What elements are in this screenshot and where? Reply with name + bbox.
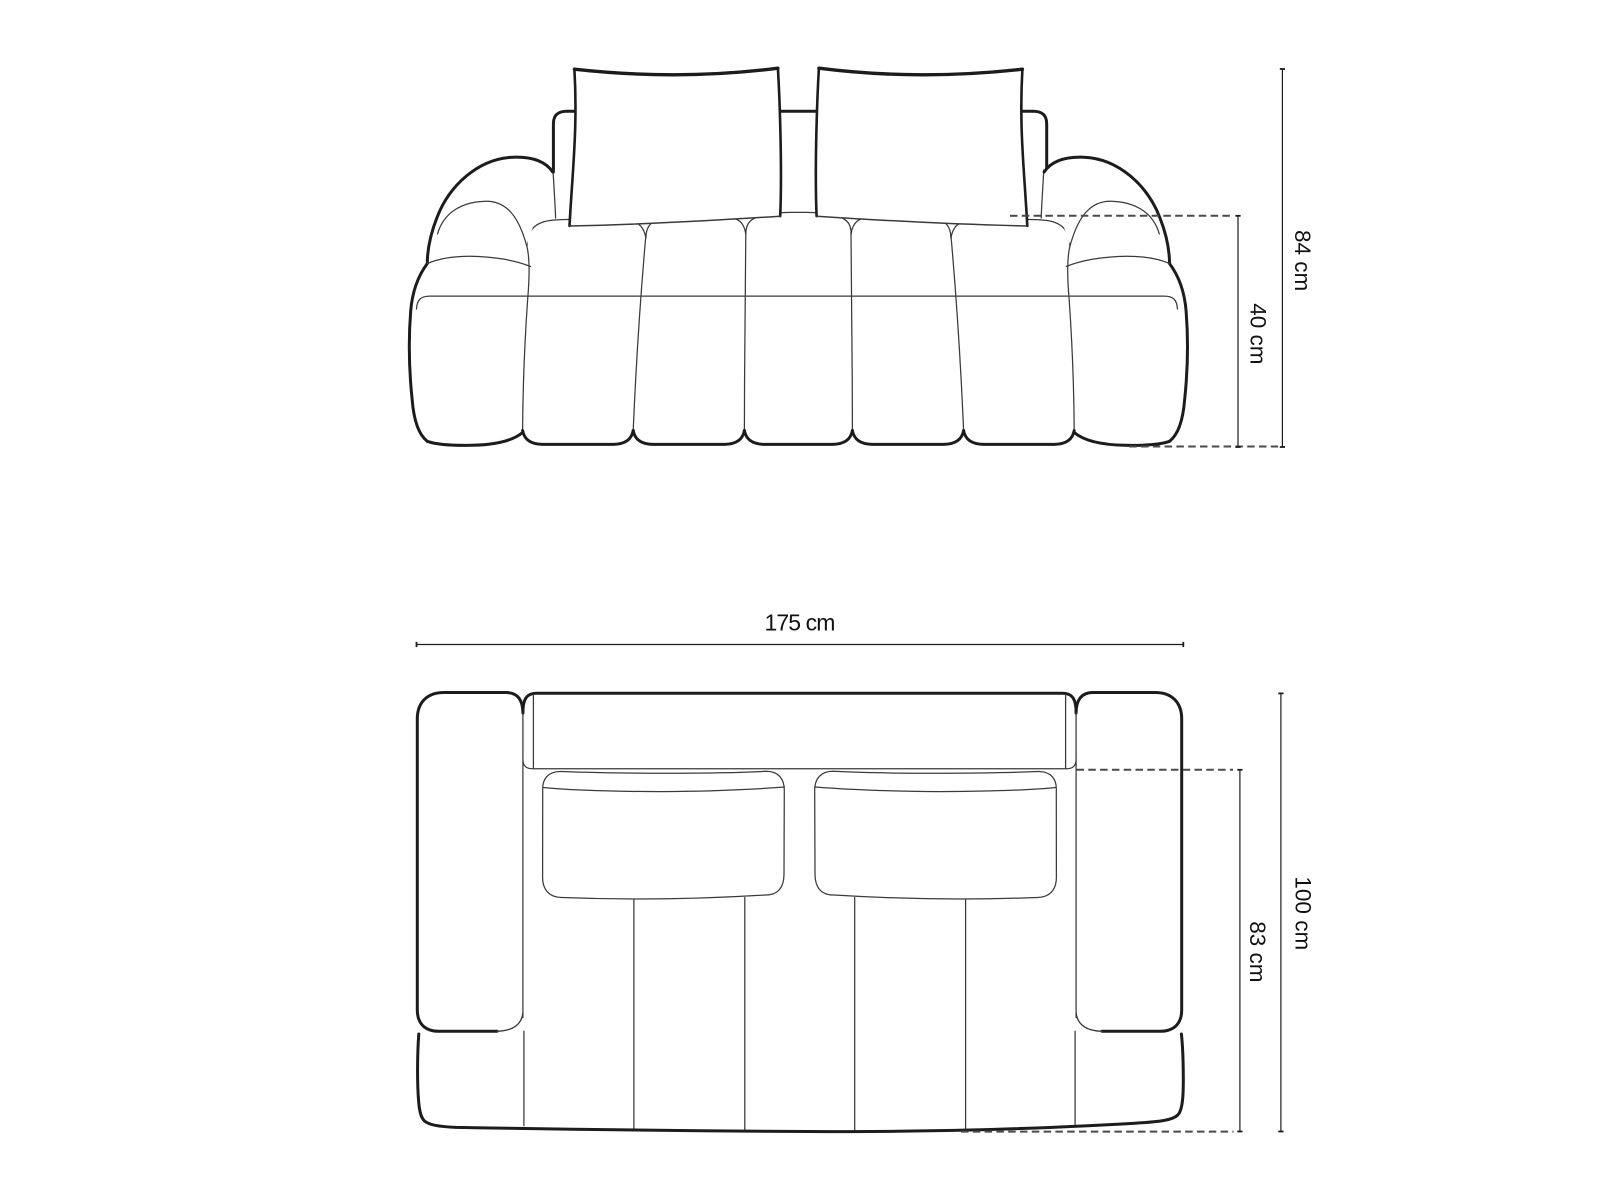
svg-text:40 cm: 40 cm <box>1246 303 1271 364</box>
svg-text:100 cm: 100 cm <box>1290 876 1315 950</box>
svg-text:83 cm: 83 cm <box>1245 921 1270 982</box>
svg-text:175 cm: 175 cm <box>764 610 834 636</box>
svg-text:84 cm: 84 cm <box>1290 230 1315 291</box>
